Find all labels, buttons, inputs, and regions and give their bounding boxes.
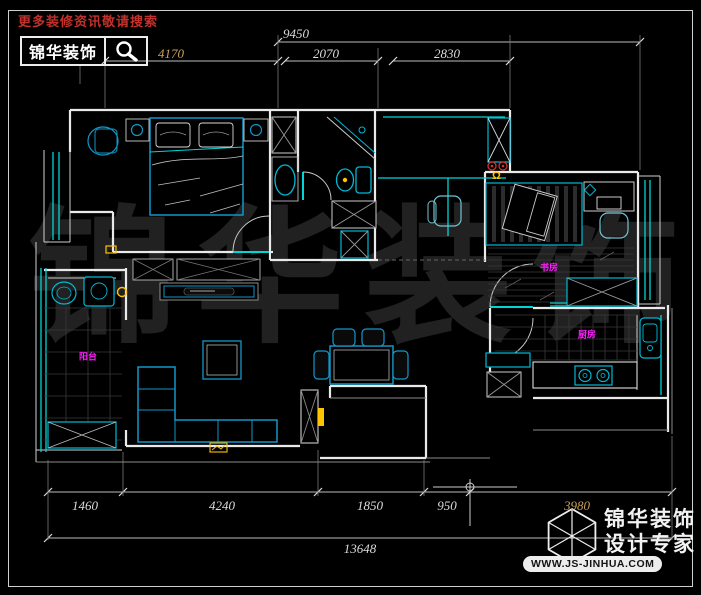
switch-symbol (318, 408, 324, 426)
television (184, 288, 234, 295)
footer-cube-logo-icon (549, 509, 596, 563)
search-icon[interactable] (106, 38, 146, 64)
dim-top-seg: 4170 (158, 46, 184, 62)
chair-seat (95, 129, 117, 153)
bathroom (272, 117, 376, 258)
chair-back (428, 201, 436, 223)
lamp-icon (132, 125, 143, 136)
nightstand (244, 119, 268, 141)
dim-top-total: 9450 (283, 26, 309, 42)
dining-chair (333, 329, 355, 346)
living-room (133, 259, 408, 452)
shower-screen (334, 117, 375, 153)
dining-table (330, 346, 393, 384)
floor-plan-drawing (0, 0, 701, 595)
dim-bottom-seg: 4240 (209, 498, 235, 514)
dining-chair (393, 351, 408, 379)
master-bedroom (88, 118, 268, 253)
pillow (156, 123, 190, 147)
mop-sink (52, 282, 76, 304)
cabinet (486, 353, 530, 367)
promo-text: 更多装修资讯敬请搜索 (18, 11, 158, 30)
room-label-study: 书房 (540, 264, 558, 273)
lamp-icon (251, 125, 262, 136)
double-bed (150, 118, 243, 215)
dim-top-seg: 2830 (434, 46, 460, 62)
blanket-folds (152, 156, 243, 213)
search-box[interactable]: 锦华装饰 (20, 36, 148, 66)
drain-symbol (343, 178, 347, 182)
dining-chair (314, 351, 329, 379)
room-label-kitchen: 厨房 (578, 331, 596, 340)
blueprint-canvas: 锦 华 装 饰 (0, 0, 701, 595)
dim-bottom-total: 13648 (344, 541, 377, 557)
dim-bottom-seg: 3980 (564, 498, 590, 514)
brand-name: 锦华装饰 (22, 38, 106, 64)
dining-chair (362, 329, 384, 346)
washing-machine (84, 277, 114, 306)
desk-chair (600, 213, 628, 238)
website-link[interactable]: WWW.JS-JINHUA.COM (523, 556, 662, 572)
nightstand (126, 119, 149, 141)
toilet-tank (356, 167, 371, 193)
dim-bottom-seg: 1850 (357, 498, 383, 514)
room-label-balcony: 阳台 (79, 353, 97, 362)
pillow (199, 123, 233, 147)
study-room (486, 182, 637, 306)
kitchen (486, 315, 661, 397)
sink (275, 165, 295, 195)
dim-bottom-seg: 950 (437, 498, 457, 514)
footer-tagline: 设计专家 (604, 532, 696, 557)
dim-top-seg: 2070 (313, 46, 339, 62)
floor-drain (359, 127, 365, 133)
dim-bottom-seg: 1460 (72, 498, 98, 514)
coffee-table (203, 341, 241, 379)
footer-brand: 锦华装饰 (604, 507, 696, 532)
chair (88, 127, 118, 155)
omega-symbol: Ω (492, 171, 501, 182)
balcony (44, 277, 127, 448)
